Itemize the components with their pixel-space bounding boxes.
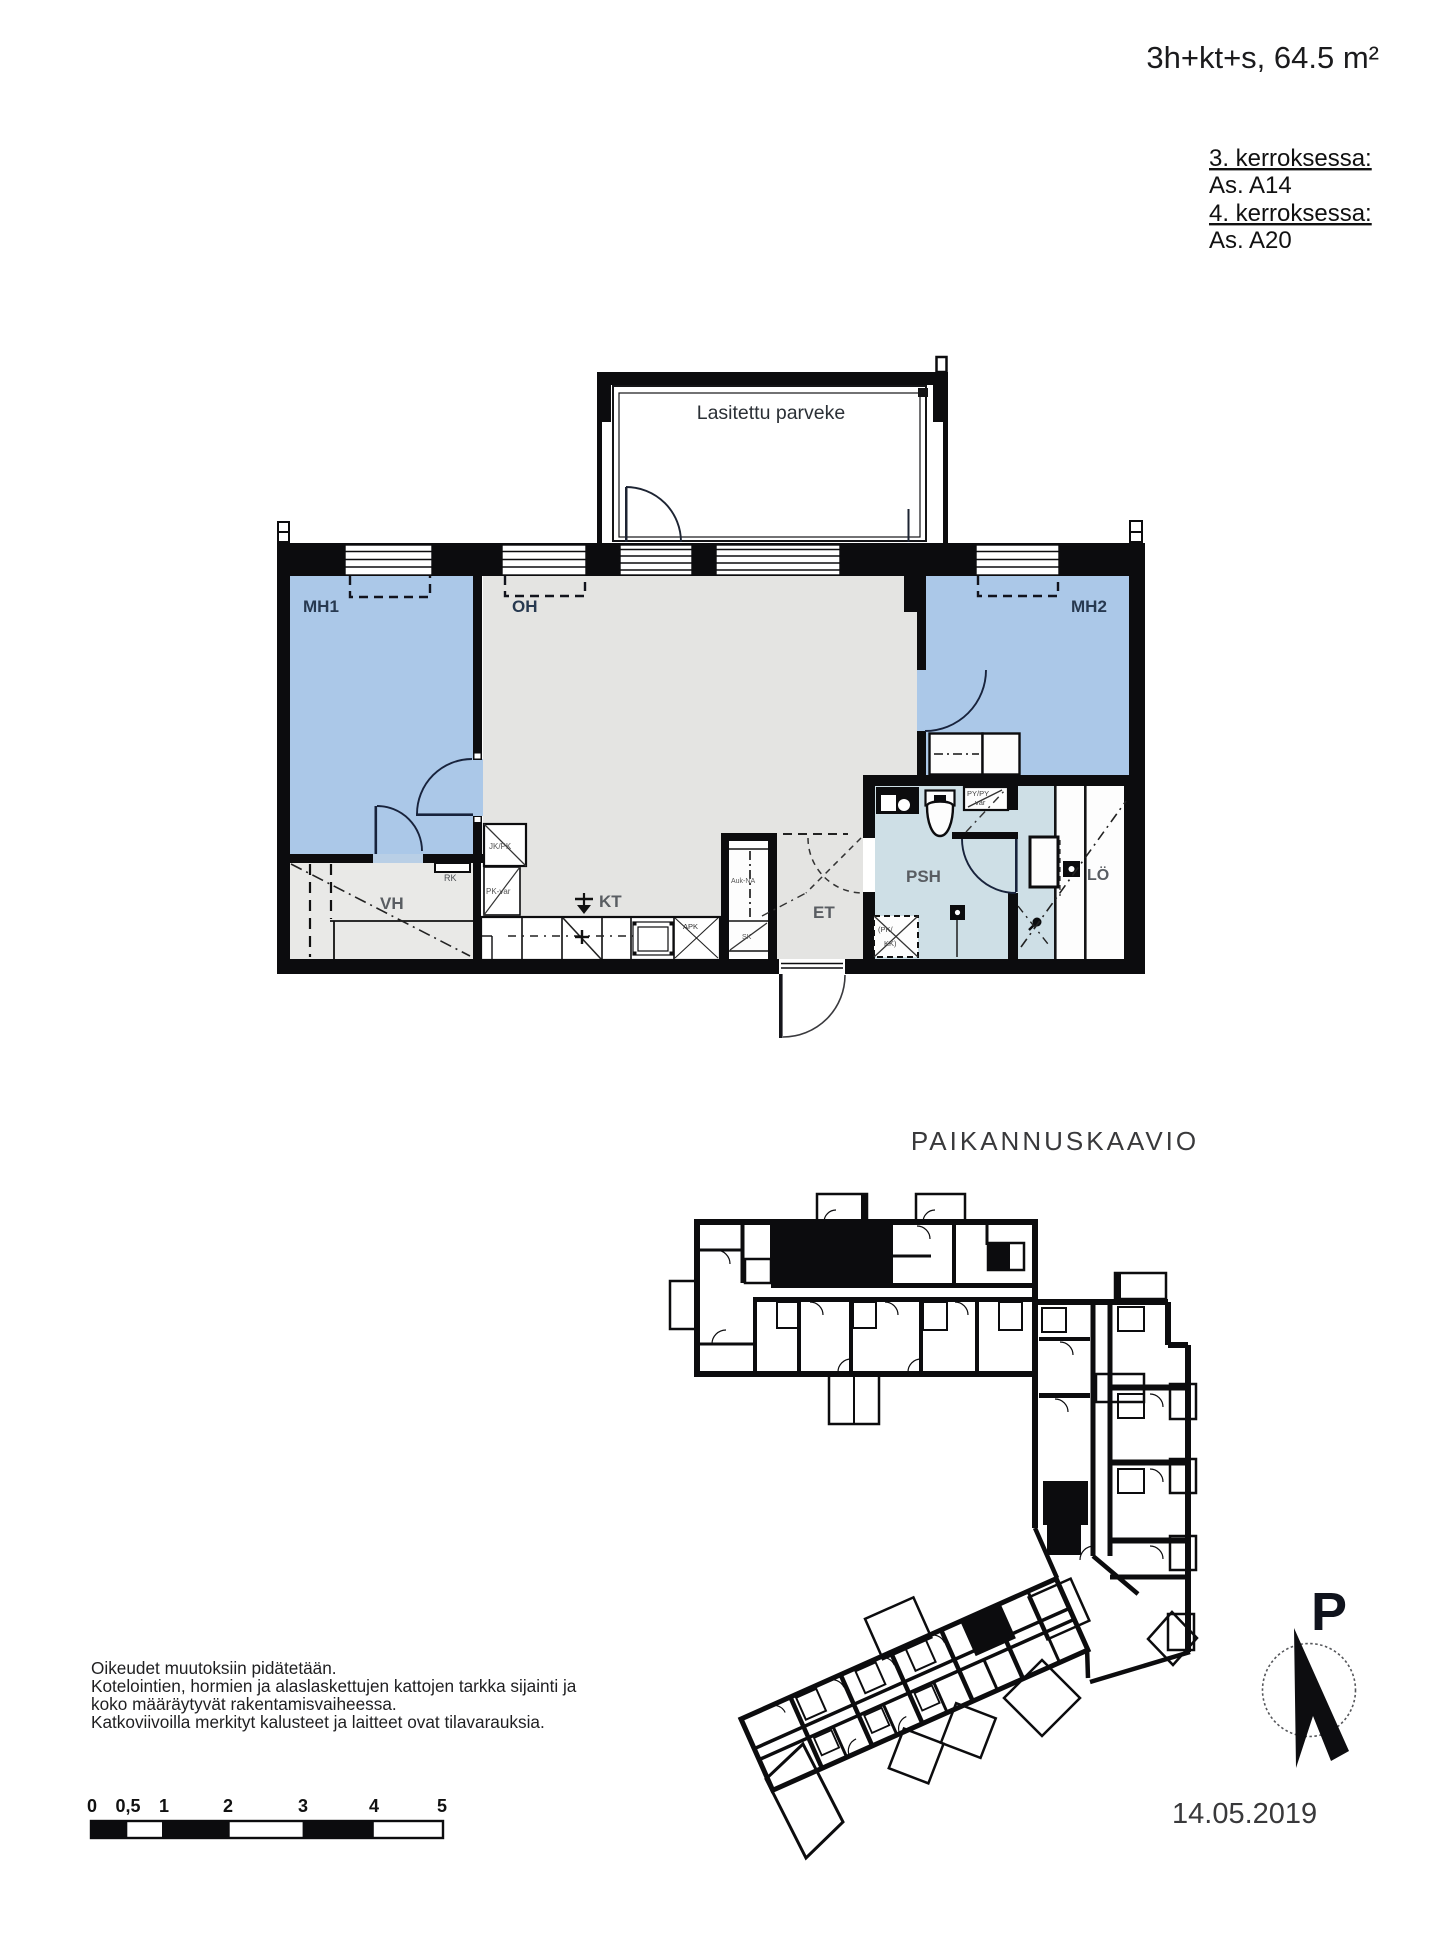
svg-text:4. kerroksessa:: 4. kerroksessa: <box>1209 200 1372 227</box>
svg-text:5: 5 <box>437 1796 447 1816</box>
svg-text:0,5: 0,5 <box>115 1796 140 1816</box>
svg-text:PY/PY: PY/PY <box>967 789 989 798</box>
svg-text:3h+kt+s, 64.5 m²: 3h+kt+s, 64.5 m² <box>1146 40 1379 75</box>
svg-text:3. kerroksessa:: 3. kerroksessa: <box>1209 145 1372 172</box>
svg-text:LÖ: LÖ <box>1087 865 1109 884</box>
svg-text:2: 2 <box>223 1796 233 1816</box>
svg-text:1: 1 <box>159 1796 169 1816</box>
svg-text:OH: OH <box>512 597 538 616</box>
svg-text:0: 0 <box>87 1796 97 1816</box>
svg-text:MH2: MH2 <box>1071 597 1107 616</box>
svg-text:Katkoviivoilla merkityt kalust: Katkoviivoilla merkityt kalusteet ja lai… <box>91 1712 545 1732</box>
svg-text:P: P <box>1311 1582 1347 1642</box>
svg-text:PSH: PSH <box>906 867 941 886</box>
svg-text:KT: KT <box>599 892 622 911</box>
svg-text:koko määräytyvät rakentamisvai: koko määräytyvät rakentamisvaiheessa. <box>91 1694 397 1714</box>
svg-text:PAIKANNUSKAAVIO: PAIKANNUSKAAVIO <box>911 1126 1199 1156</box>
svg-text:JK/PK: JK/PK <box>489 842 512 851</box>
svg-text:Lasitettu parveke: Lasitettu parveke <box>697 402 846 424</box>
svg-text:APK: APK <box>683 922 698 931</box>
svg-text:Oikeudet muutoksiin pidätetään: Oikeudet muutoksiin pidätetään. <box>91 1658 337 1678</box>
svg-text:var: var <box>975 798 986 807</box>
svg-text:SK: SK <box>742 934 752 941</box>
svg-text:Auk-NA: Auk-NA <box>731 878 755 885</box>
svg-text:ET: ET <box>813 903 835 922</box>
svg-text:MH1: MH1 <box>303 597 339 616</box>
svg-text:(PK/: (PK/ <box>878 925 894 934</box>
svg-text:3: 3 <box>298 1796 308 1816</box>
svg-text:As. A20: As. A20 <box>1209 227 1292 254</box>
svg-text:VH: VH <box>380 894 404 913</box>
svg-text:KK): KK) <box>884 939 897 948</box>
svg-text:As. A14: As. A14 <box>1209 172 1292 199</box>
svg-text:PK-var: PK-var <box>486 887 511 896</box>
svg-text:4: 4 <box>369 1796 379 1816</box>
svg-text:Kotelointien, hormien ja alasl: Kotelointien, hormien ja alaslaskettujen… <box>91 1676 577 1696</box>
svg-text:RK: RK <box>444 873 457 883</box>
svg-text:14.05.2019: 14.05.2019 <box>1172 1798 1317 1830</box>
